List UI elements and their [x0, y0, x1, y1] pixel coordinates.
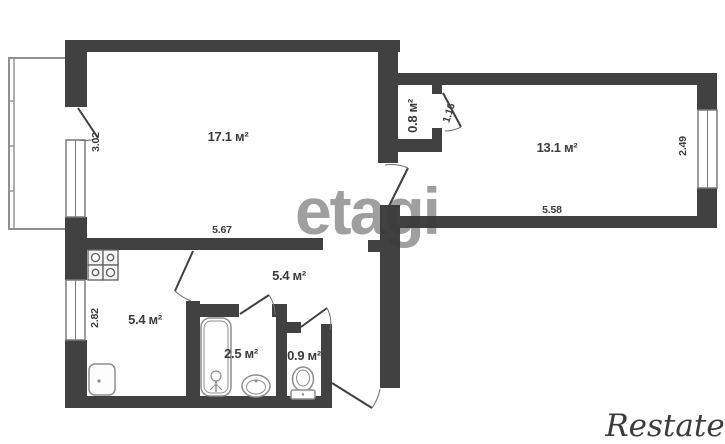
wall [287, 322, 301, 333]
stove-icon [88, 250, 118, 280]
watermark-etagi: etagi [295, 174, 439, 248]
toilet-area-label: 0.9 м² [287, 348, 322, 363]
kitchen-door-swing [175, 251, 193, 301]
watermark-restate: Restate [604, 408, 724, 444]
entrance-door-swing [332, 383, 380, 408]
wall [321, 324, 332, 396]
wall [276, 304, 287, 396]
wall [65, 40, 400, 52]
bedroom-depth-label: 2.49 [677, 136, 689, 156]
balcony-outline [9, 58, 72, 229]
wall [65, 238, 323, 250]
closet-area-label: 0.8 м² [405, 98, 420, 133]
window-living-room [66, 140, 85, 217]
wall [697, 85, 717, 110]
living-room-area-label: 17.1 м² [208, 129, 250, 144]
living-room-width-label: 5.67 [212, 224, 232, 236]
wall [65, 340, 87, 408]
floor-plan-image: 17.1 м² 13.1 м² 0.8 м² 5.4 м² 5.4 м² 2.5… [0, 0, 725, 444]
wall [400, 216, 717, 228]
washbasin-icon [242, 375, 270, 397]
kitchen-sink-icon [89, 364, 115, 395]
wall [378, 52, 398, 163]
wall [186, 301, 200, 396]
window-kitchen [66, 280, 85, 340]
kitchen-area-label: 5.4 м² [128, 312, 163, 327]
wall [697, 188, 717, 228]
toilet-icon [291, 367, 315, 399]
wall [65, 40, 87, 107]
closet-door-width-label: 1.16 [440, 102, 458, 125]
kitchen-depth-label: 2.82 [89, 308, 101, 328]
living-room-depth-label: 3.02 [90, 132, 102, 152]
wall [432, 128, 442, 142]
bedroom-width-label: 5.58 [542, 204, 562, 216]
floor-plan: 17.1 м² 13.1 м² 0.8 м² 5.4 м² 5.4 м² 2.5… [0, 0, 725, 444]
hallway-area-label: 5.4 м² [272, 268, 307, 283]
bathroom-area-label: 2.5 м² [224, 346, 259, 361]
wall [432, 85, 442, 94]
wall [395, 73, 717, 85]
watermarks: etagi etagi Restate [295, 174, 725, 444]
wall [65, 217, 87, 280]
bathroom-door-swing [240, 295, 275, 315]
bedroom-area-label: 13.1 м² [537, 140, 579, 155]
window-bedroom [698, 110, 717, 188]
